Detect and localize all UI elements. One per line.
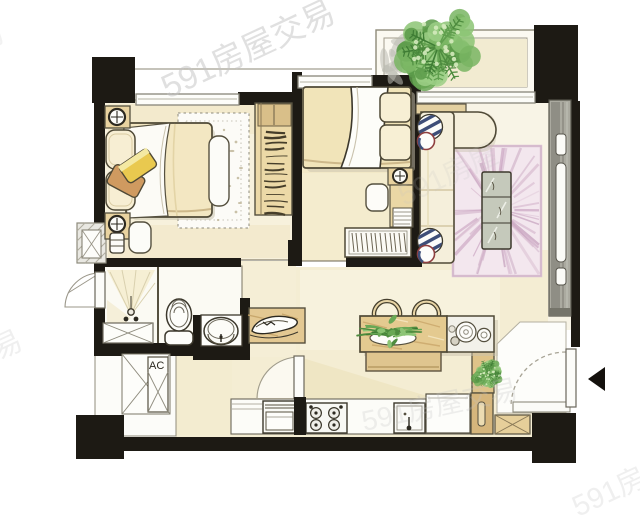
svg-text:AC: AC xyxy=(149,360,164,372)
